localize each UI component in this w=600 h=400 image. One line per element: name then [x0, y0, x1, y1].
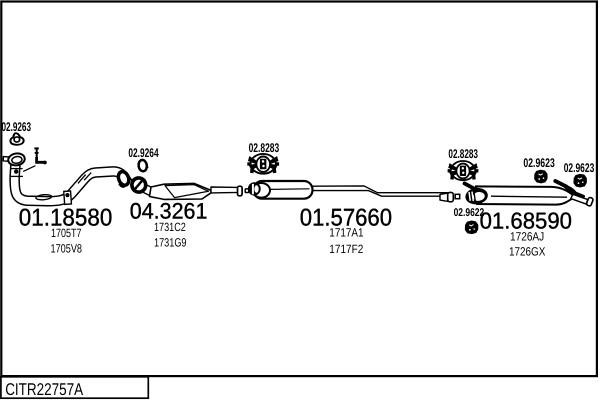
svg-text:1717A1: 1717A1	[329, 226, 363, 240]
svg-text:02.9623: 02.9623	[564, 161, 595, 175]
svg-text:1726AJ: 1726AJ	[510, 229, 544, 243]
svg-text:02.9264: 02.9264	[128, 146, 158, 160]
svg-text:02.9263: 02.9263	[2, 120, 32, 134]
svg-text:02.8283: 02.8283	[448, 147, 478, 161]
svg-text:1717F2: 1717F2	[329, 242, 363, 256]
svg-text:1705V8: 1705V8	[51, 242, 83, 256]
svg-text:1731C2: 1731C2	[154, 220, 186, 234]
svg-text:1731G9: 1731G9	[154, 236, 187, 250]
svg-text:1726GX: 1726GX	[509, 245, 545, 259]
svg-text:1705T7: 1705T7	[51, 226, 82, 240]
svg-text:02.8283: 02.8283	[249, 141, 280, 155]
svg-text:CITR22757A: CITR22757A	[5, 380, 84, 399]
svg-text:02.9623: 02.9623	[523, 156, 554, 170]
